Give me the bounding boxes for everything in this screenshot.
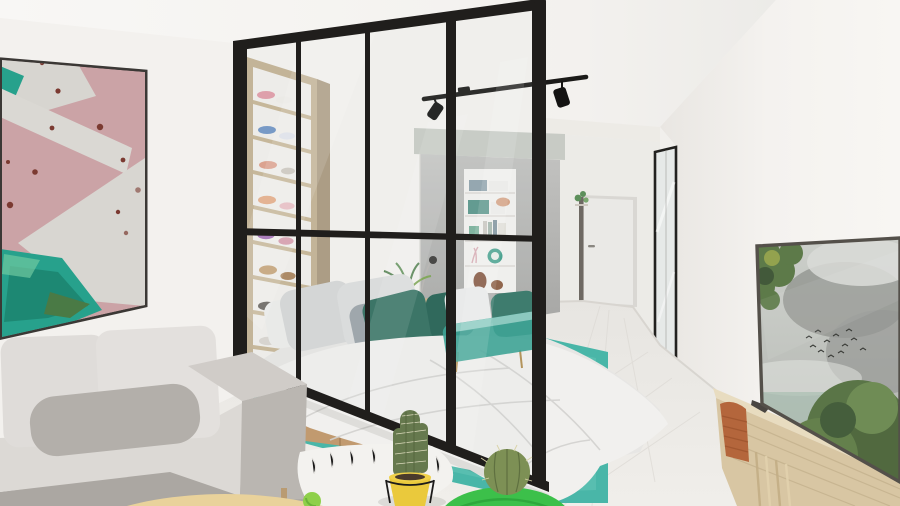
- glass-door: [655, 147, 676, 360]
- scene: [0, 0, 900, 506]
- sofa-armrest-side: [240, 384, 307, 502]
- partition-right-stile: [532, 0, 546, 490]
- abstract-painting: [0, 45, 145, 338]
- entry-door: [584, 198, 633, 305]
- partition-mullion-2: [365, 24, 370, 414]
- partition-left-stile: [233, 41, 247, 372]
- door-hinge-strip: [579, 197, 584, 303]
- door-handle-icon: [588, 245, 595, 247]
- partition-mullion-1: [296, 33, 301, 388]
- interior-render: [0, 0, 900, 506]
- partition-door-stile: [446, 14, 456, 447]
